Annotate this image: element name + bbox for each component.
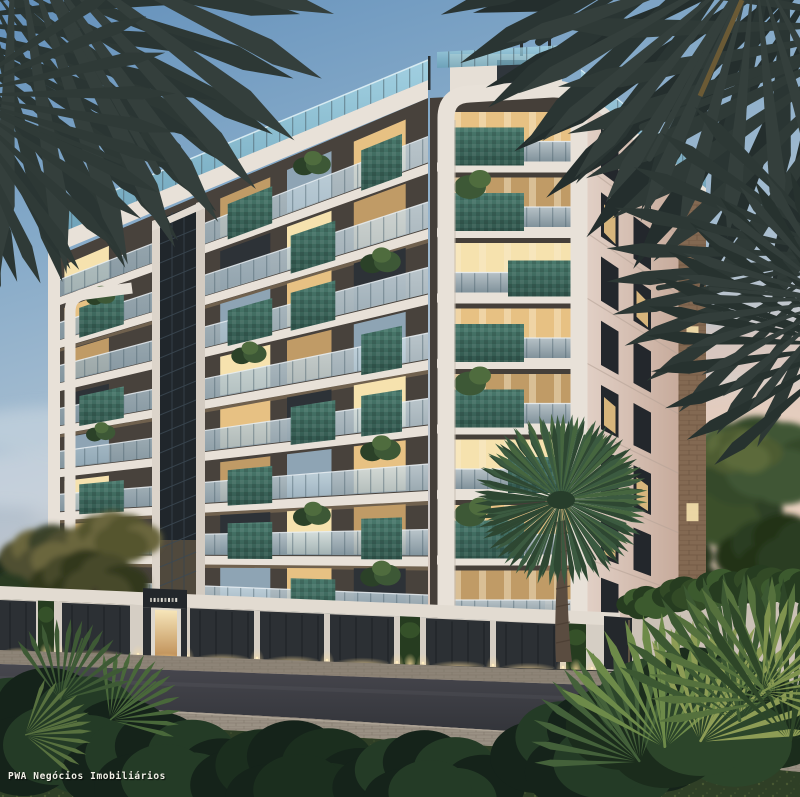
- corner-floor-3: [437, 243, 585, 304]
- garage-door: [260, 611, 324, 666]
- building-name-sign: [154, 598, 156, 602]
- building-name-sign: [168, 598, 170, 602]
- building-name-sign: [161, 598, 163, 602]
- garage-door: [426, 618, 490, 671]
- garage-door: [0, 600, 36, 658]
- building-name-sign: [175, 598, 177, 602]
- watermark-text: PWA Negócios Imobiliários: [8, 771, 166, 782]
- garage-door: [330, 614, 394, 668]
- building-name-sign: [172, 598, 174, 602]
- building-name-sign: [164, 598, 166, 602]
- scene-canvas: [0, 0, 800, 797]
- garage-door: [496, 621, 560, 673]
- architectural-rendering: PWA Negócios Imobiliários: [0, 0, 800, 797]
- building-name-sign: [150, 598, 152, 602]
- building-entrance: [143, 588, 187, 665]
- building-name-sign: [157, 598, 159, 602]
- garage-door: [190, 608, 254, 664]
- corner-floor-4: [437, 309, 585, 370]
